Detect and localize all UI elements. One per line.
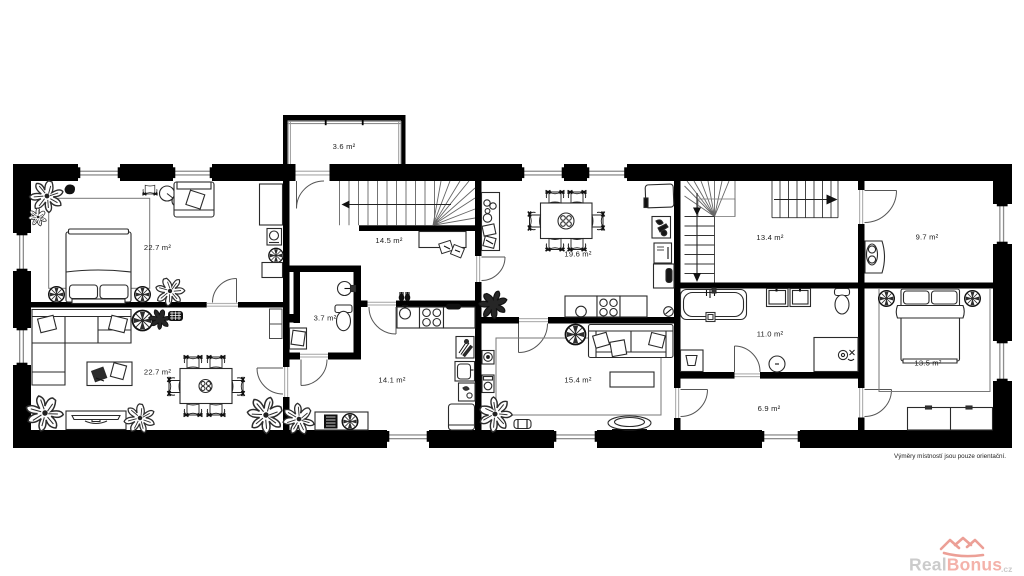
- svg-text:15.4 m²: 15.4 m²: [564, 375, 591, 384]
- svg-text:6.9 m²: 6.9 m²: [758, 404, 781, 413]
- svg-text:Výměry místností jsou pouze or: Výměry místností jsou pouze orientační.: [894, 453, 1006, 460]
- svg-text:11.0 m²: 11.0 m²: [757, 330, 784, 339]
- svg-text:13.4 m²: 13.4 m²: [756, 233, 783, 242]
- svg-text:14.1 m²: 14.1 m²: [378, 376, 405, 385]
- svg-text:14.5 m²: 14.5 m²: [375, 236, 402, 245]
- svg-text:9.7 m²: 9.7 m²: [916, 233, 939, 242]
- svg-text:3.7 m²: 3.7 m²: [314, 314, 337, 323]
- svg-text:.cz: .cz: [1001, 564, 1012, 574]
- svg-text:19.6 m²: 19.6 m²: [564, 249, 591, 258]
- svg-text:22.7 m²: 22.7 m²: [144, 368, 171, 377]
- svg-text:3.6 m²: 3.6 m²: [333, 142, 356, 151]
- svg-text:RealBonus: RealBonus: [909, 555, 1002, 575]
- svg-text:22.7 m²: 22.7 m²: [144, 243, 171, 252]
- svg-text:13.5 m²: 13.5 m²: [914, 359, 941, 368]
